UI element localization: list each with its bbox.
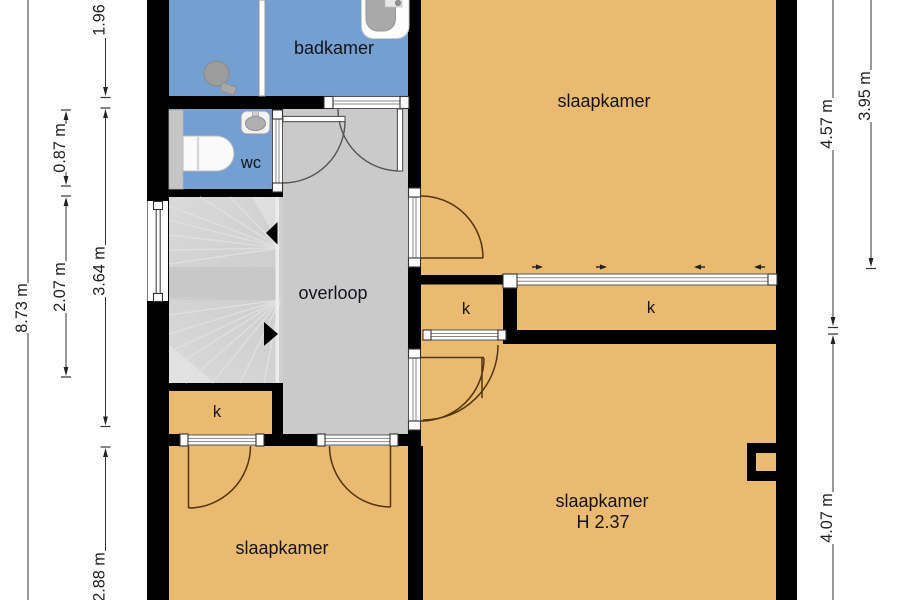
- svg-text:slaapkamer: slaapkamer: [557, 91, 650, 111]
- svg-text:k: k: [213, 403, 222, 421]
- svg-text:0.87 m: 0.87 m: [51, 123, 69, 173]
- svg-text:4.07 m: 4.07 m: [818, 493, 836, 543]
- svg-text:badkamer: badkamer: [294, 38, 374, 58]
- svg-text:slaapkamer: slaapkamer: [235, 538, 328, 558]
- svg-text:3.95 m: 3.95 m: [856, 71, 874, 121]
- svg-text:8.73 m: 8.73 m: [13, 283, 31, 333]
- svg-text:1.96 m: 1.96 m: [91, 0, 109, 36]
- svg-text:4.57 m: 4.57 m: [818, 99, 836, 149]
- svg-text:2.07 m: 2.07 m: [51, 262, 69, 312]
- svg-text:k: k: [462, 300, 471, 318]
- svg-text:k: k: [647, 299, 656, 317]
- svg-text:wc: wc: [240, 154, 261, 172]
- svg-text:slaapkamer: slaapkamer: [555, 491, 648, 511]
- svg-text:H 2.37: H 2.37: [576, 512, 629, 532]
- svg-text:3.64 m: 3.64 m: [91, 246, 109, 296]
- svg-text:2.88 m: 2.88 m: [91, 552, 109, 600]
- svg-text:overloop: overloop: [298, 283, 367, 303]
